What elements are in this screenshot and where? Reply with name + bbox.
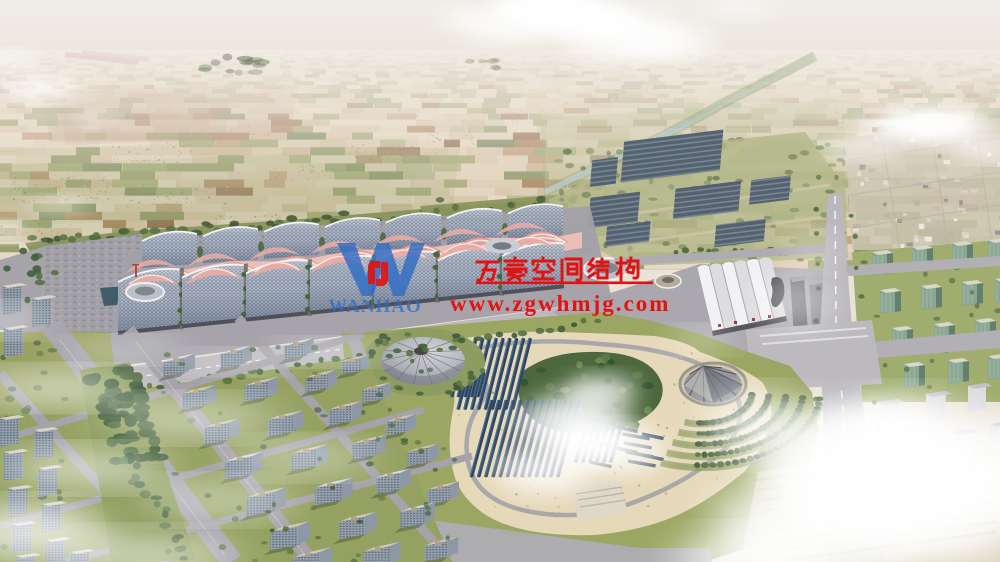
svg-text:www.zgwhmjg.com: www.zgwhmjg.com bbox=[450, 291, 670, 316]
svg-text:WANHAO: WANHAO bbox=[328, 296, 422, 317]
